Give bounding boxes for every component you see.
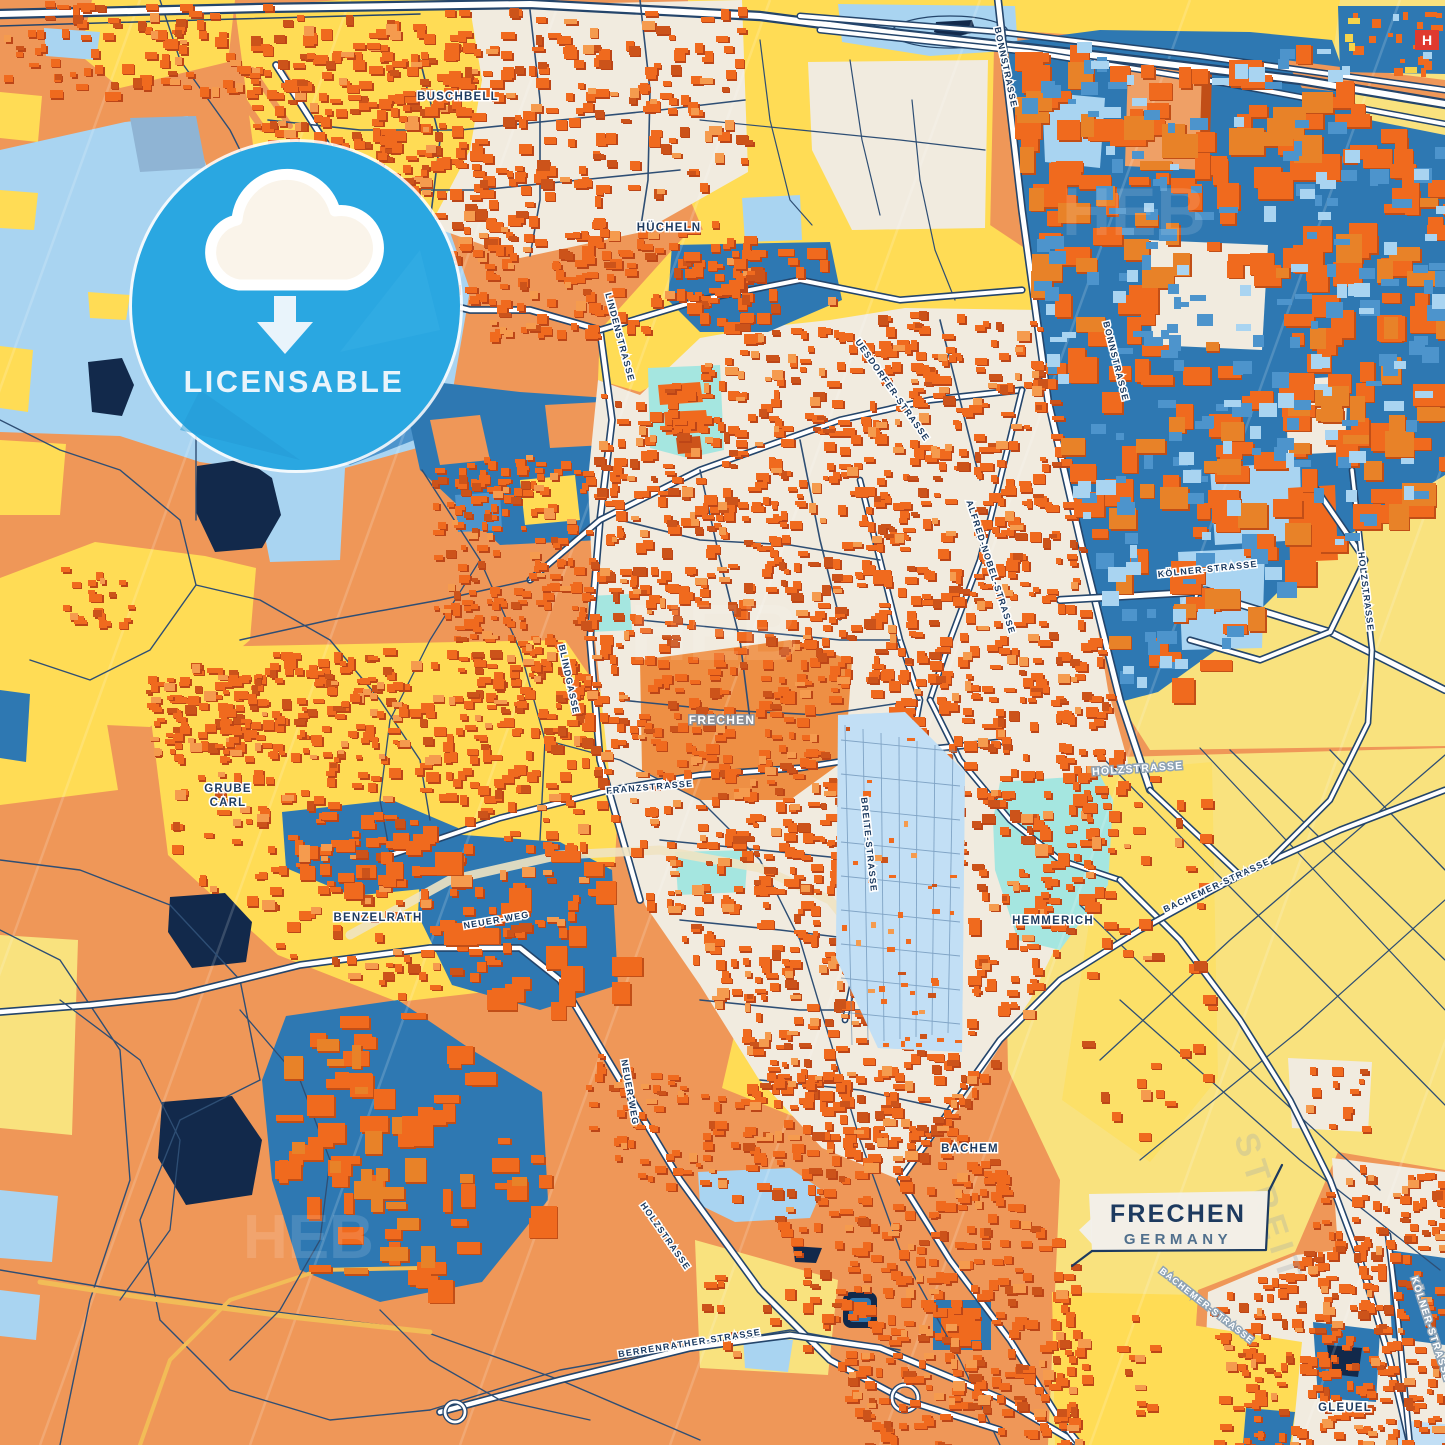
svg-text:HÜCHELN: HÜCHELN <box>637 221 702 234</box>
svg-text:LICENSABLE: LICENSABLE <box>184 365 405 399</box>
svg-text:FRECHEN: FRECHEN <box>689 713 755 727</box>
svg-text:BENZELRATH: BENZELRATH <box>333 912 422 924</box>
svg-text:GRUBE: GRUBE <box>204 783 252 795</box>
svg-text:CARL: CARL <box>210 797 247 809</box>
svg-text:HEB: HEB <box>243 1203 374 1272</box>
svg-text:BACHEM: BACHEM <box>941 1143 999 1155</box>
svg-text:H: H <box>1422 32 1432 48</box>
svg-text:HEB: HEB <box>630 588 799 677</box>
svg-text:HEMMERICH: HEMMERICH <box>1012 915 1094 927</box>
svg-text:GLEUEL: GLEUEL <box>1318 1402 1372 1414</box>
svg-text:GERMANY: GERMANY <box>1124 1231 1232 1248</box>
svg-text:HEB: HEB <box>1062 174 1206 250</box>
svg-text:FRECHEN: FRECHEN <box>1110 1200 1246 1228</box>
svg-text:BUSCHBELL: BUSCHBELL <box>417 91 499 103</box>
